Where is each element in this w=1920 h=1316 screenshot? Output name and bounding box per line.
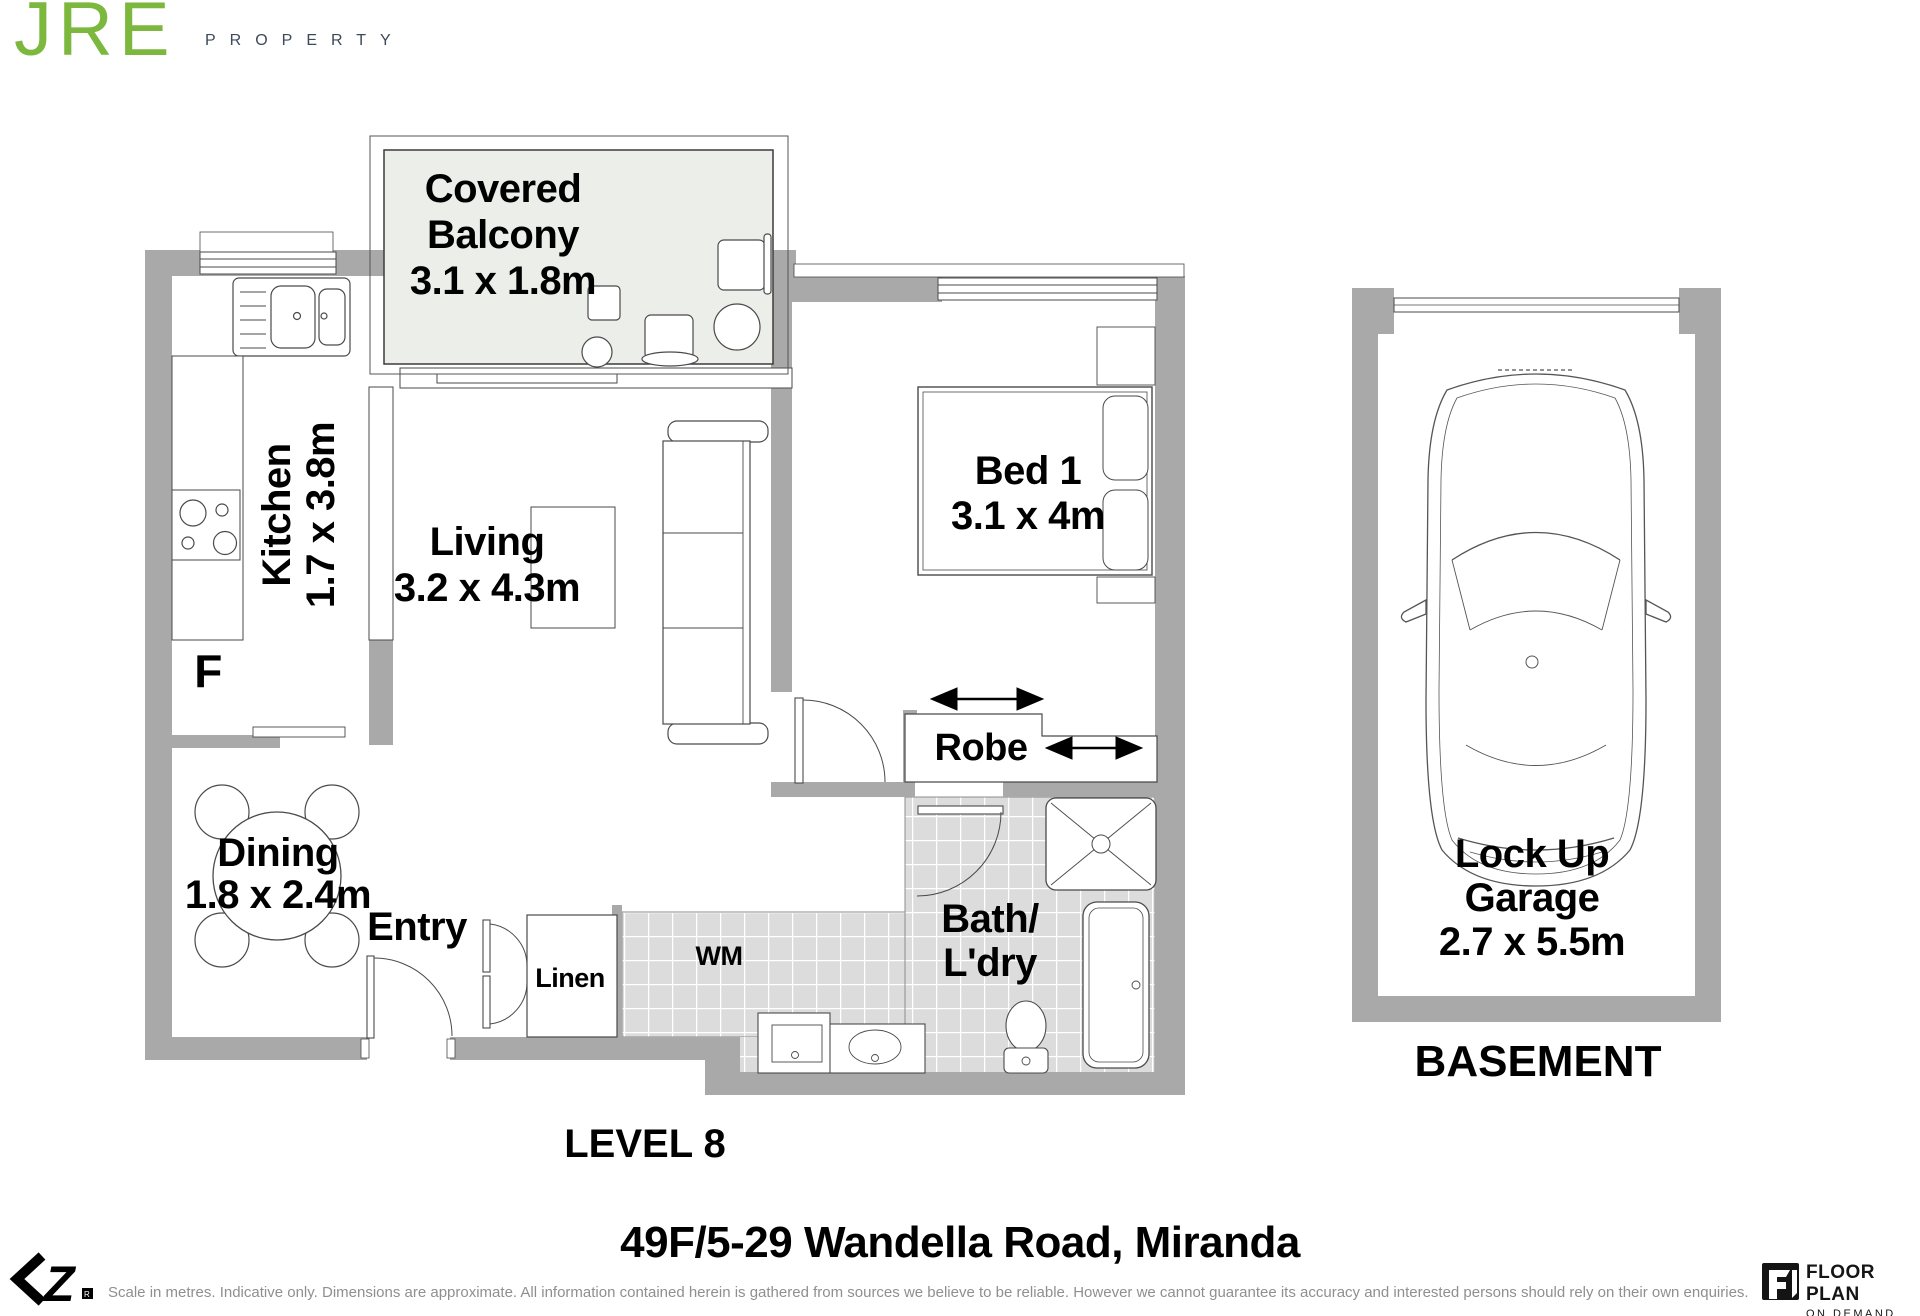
credit-line2: ON DEMAND bbox=[1806, 1308, 1920, 1316]
sofa-armrest bbox=[668, 723, 768, 744]
linen-door-leaf bbox=[483, 976, 490, 1028]
label-entry: Entry bbox=[367, 905, 467, 949]
label-bath-ldry: Bath/ L'dry bbox=[941, 897, 1039, 985]
linen-door-leaf bbox=[483, 920, 490, 972]
label-linen: Linen bbox=[535, 964, 605, 994]
disclaimer-text: Scale in metres. Indicative only. Dimens… bbox=[108, 1284, 1749, 1301]
pillow bbox=[1103, 396, 1148, 480]
bedside-shelf bbox=[1097, 327, 1155, 385]
bath-door-leaf bbox=[918, 806, 1003, 814]
label-basement: BASEMENT bbox=[1415, 1038, 1662, 1086]
address-title: 49F/5-29 Wandella Road, Miranda bbox=[0, 1218, 1920, 1268]
label-fridge: F bbox=[194, 646, 222, 697]
pillow bbox=[1103, 490, 1148, 570]
label-robe: Robe bbox=[935, 728, 1028, 770]
sofa-body bbox=[663, 441, 750, 724]
svg-text:R: R bbox=[84, 1290, 90, 1299]
toilet bbox=[1006, 1001, 1046, 1051]
credit-line1: FLOOR PLAN bbox=[1806, 1262, 1920, 1306]
label-bed1: Bed 1 3.1 x 4m bbox=[951, 449, 1105, 539]
side-mirror bbox=[1401, 600, 1426, 622]
label-living: Living 3.2 x 4.3m bbox=[394, 519, 580, 611]
brand-name: JRE bbox=[14, 0, 176, 73]
side-mirror bbox=[1646, 600, 1671, 622]
car-top-view bbox=[1401, 370, 1670, 886]
bedroom-door-leaf bbox=[795, 698, 803, 783]
entry-door-leaf bbox=[367, 956, 374, 1038]
bedside-shelf bbox=[1097, 577, 1155, 603]
floorplan-page: Z R JRE PROPERTY Covered Balcony 3.1 x 1… bbox=[0, 0, 1920, 1316]
laundry-tub bbox=[758, 1013, 830, 1073]
floorplan-credit-icon bbox=[1762, 1263, 1799, 1300]
label-lockup-garage: Lock Up Garage 2.7 x 5.5m bbox=[1439, 832, 1625, 964]
label-level: LEVEL 8 bbox=[564, 1122, 726, 1166]
label-covered-balcony: Covered Balcony 3.1 x 1.8m bbox=[410, 166, 596, 304]
label-kitchen: Kitchen 1.7 x 3.8m bbox=[255, 422, 343, 608]
kitchen-bench bbox=[369, 387, 393, 640]
brand-tagline: PROPERTY bbox=[205, 32, 405, 50]
floorplan-drawing: Z R bbox=[0, 0, 1920, 1316]
label-wm: WM bbox=[696, 942, 743, 972]
label-dining: Dining 1.8 x 2.4m bbox=[185, 832, 371, 916]
floorplan-credit: FLOOR PLAN ON DEMAND bbox=[1806, 1262, 1920, 1316]
sofa-armrest bbox=[668, 421, 768, 442]
